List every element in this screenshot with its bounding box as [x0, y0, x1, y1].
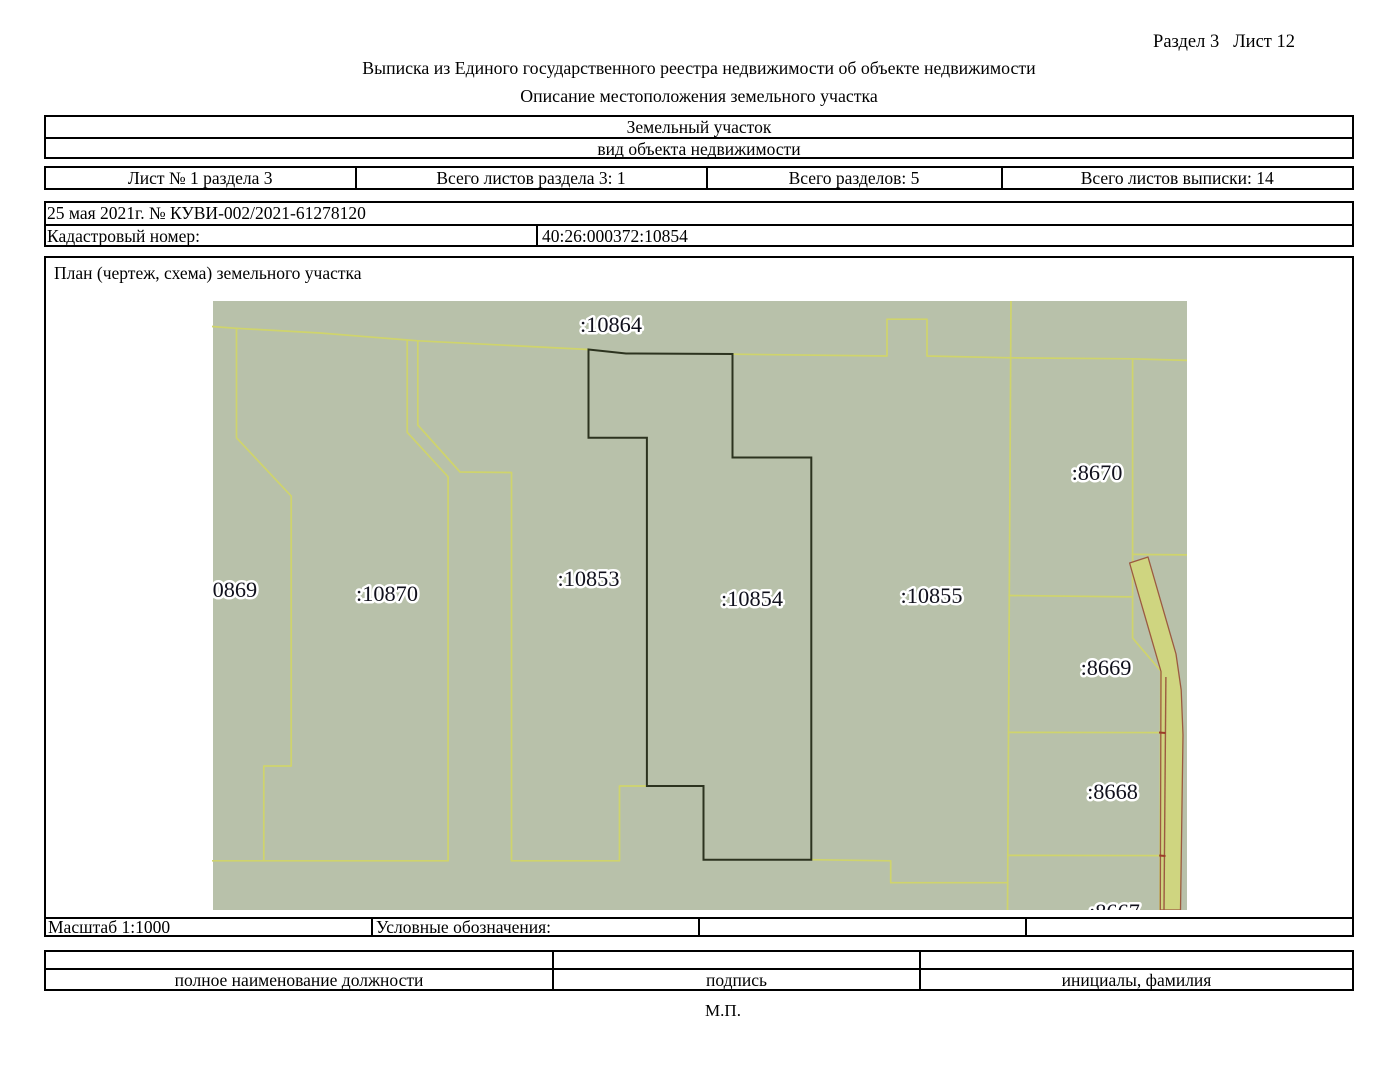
svg-text::10853: :10853 — [558, 566, 620, 591]
svg-text::10855: :10855 — [901, 583, 963, 608]
svg-text::10864: :10864 — [580, 312, 642, 337]
svg-text::8667: :8667 — [1089, 899, 1140, 910]
svg-text::8669: :8669 — [1081, 655, 1132, 680]
svg-text::8670: :8670 — [1072, 460, 1123, 485]
svg-text::10870: :10870 — [356, 581, 418, 606]
svg-text::10854: :10854 — [721, 586, 783, 611]
svg-text::10869: :10869 — [212, 577, 257, 602]
svg-text::8668: :8668 — [1087, 779, 1138, 804]
